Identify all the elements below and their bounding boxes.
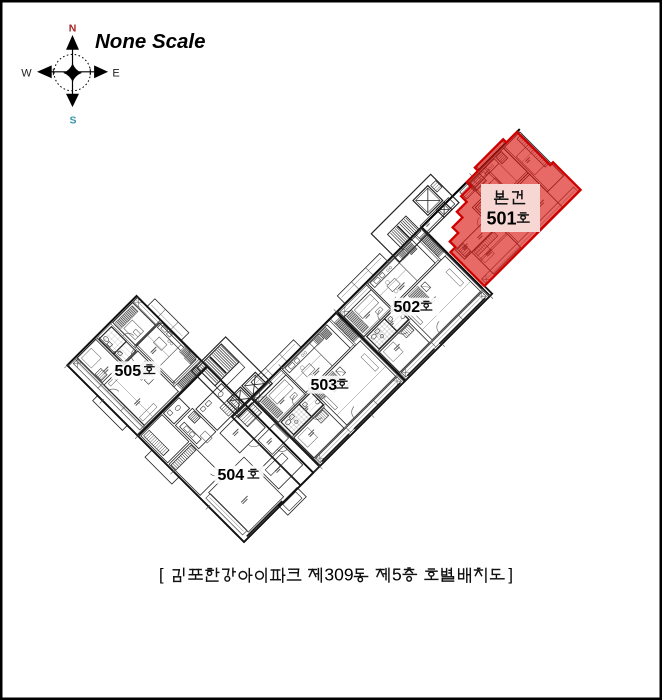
svg-text:None Scale: None Scale	[95, 30, 206, 53]
svg-text:503: 503	[311, 377, 338, 394]
svg-text:N: N	[69, 23, 77, 35]
svg-text:[: [	[159, 566, 164, 584]
svg-text:504: 504	[218, 467, 245, 484]
svg-text:E: E	[112, 68, 119, 80]
svg-text:501: 501	[487, 209, 517, 229]
svg-text:505: 505	[115, 363, 142, 380]
svg-text:]: ]	[508, 566, 513, 584]
svg-text:5: 5	[392, 565, 402, 585]
svg-text:W: W	[21, 68, 32, 80]
svg-text:309: 309	[324, 565, 353, 585]
svg-text:S: S	[69, 115, 76, 127]
svg-text:502: 502	[394, 299, 421, 316]
